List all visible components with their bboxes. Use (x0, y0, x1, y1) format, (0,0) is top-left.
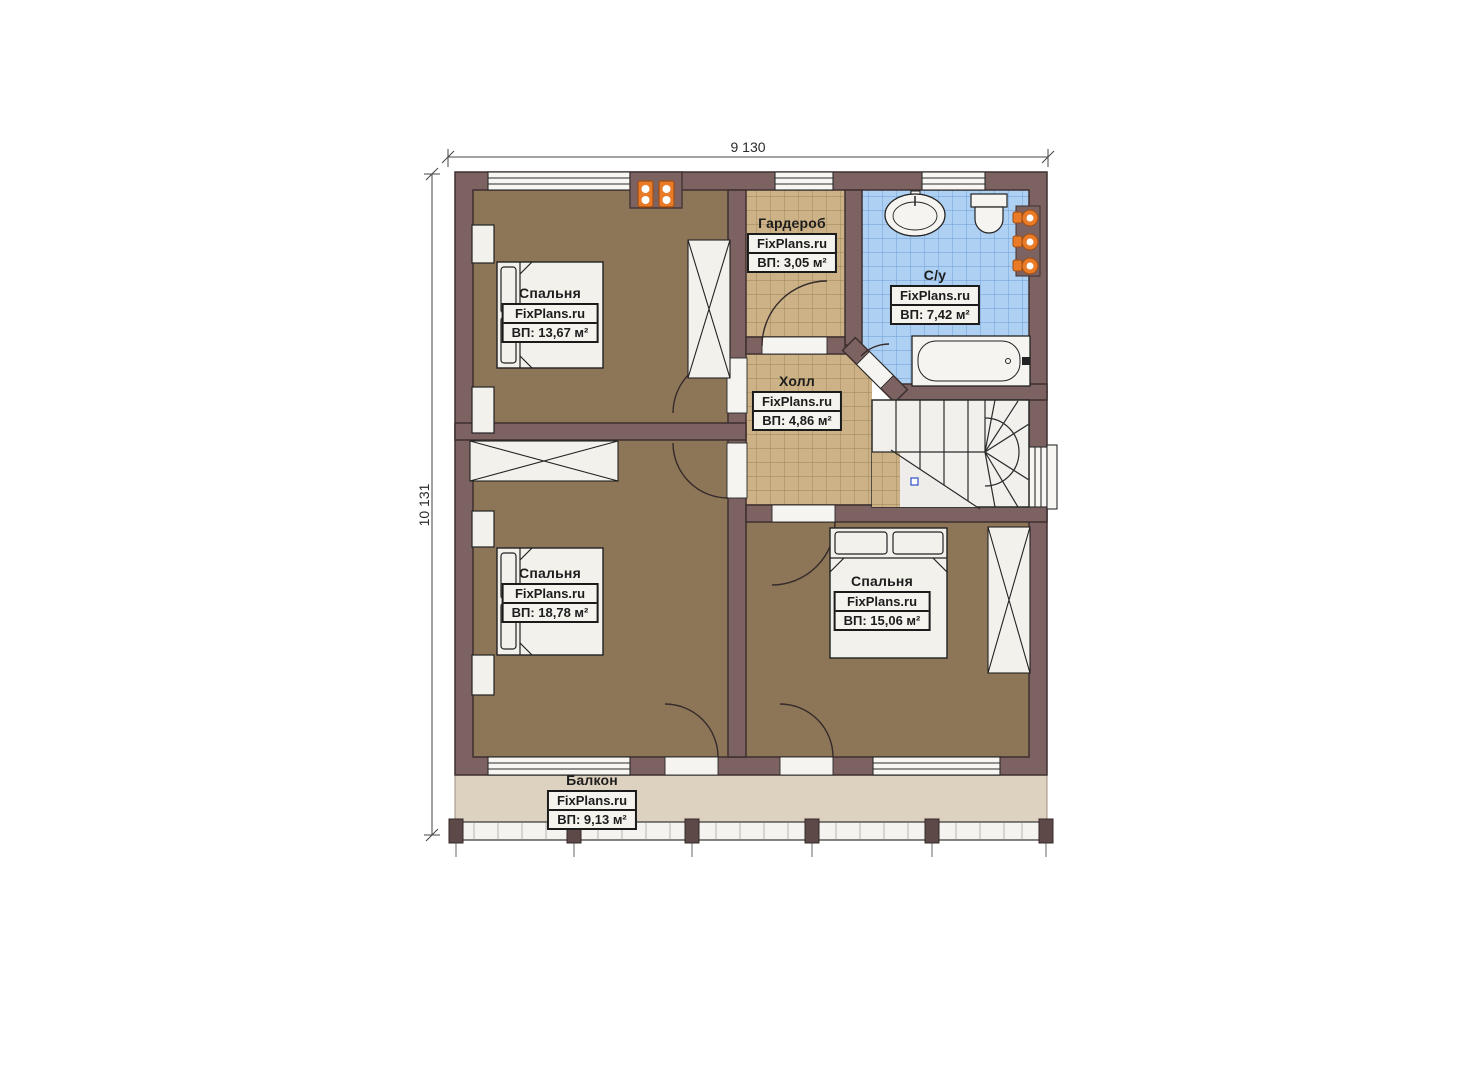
room-info-box: FixPlans.ru ВП: 3,05 м² (747, 233, 837, 273)
room-label-bedroom2: Спальня FixPlans.ru ВП: 18,78 м² (502, 565, 599, 623)
brand-watermark: FixPlans.ru (549, 792, 635, 809)
bedroom3-door-opening (772, 505, 835, 522)
floor-plan-drawing (0, 0, 1473, 1080)
bedroom2-door-opening (727, 443, 747, 498)
room-area: ВП: 13,67 м² (504, 322, 597, 341)
window-top-wardrobe (775, 172, 833, 190)
dimension-height-label: 10 131 (416, 484, 432, 527)
window-right-stairs (1029, 445, 1057, 509)
nightstand (472, 387, 494, 433)
brand-watermark: FixPlans.ru (892, 287, 978, 304)
brand-watermark: FixPlans.ru (836, 593, 929, 610)
room-info-box: FixPlans.ru ВП: 7,42 м² (890, 285, 980, 325)
room-info-box: FixPlans.ru ВП: 13,67 м² (502, 303, 599, 343)
room-area: ВП: 15,06 м² (836, 610, 929, 629)
stair-break-marker (911, 478, 918, 485)
room-name: С/у (890, 267, 980, 283)
room-name: Спальня (502, 285, 599, 301)
dimension-width-label: 9 130 (730, 139, 765, 155)
room-area: ВП: 18,78 м² (504, 602, 597, 621)
window-top-bedroom1 (488, 172, 630, 190)
bedroom-divider-wall (455, 423, 746, 440)
room-name: Гардероб (747, 215, 837, 231)
room-name: Спальня (834, 573, 931, 589)
bedroom3-wardrobe-icon (988, 527, 1030, 673)
bedroom1-wardrobe-icon (688, 240, 730, 378)
brand-watermark: FixPlans.ru (504, 585, 597, 602)
towel-radiator-icon (1013, 206, 1040, 276)
wardrobe-door-opening (762, 337, 827, 354)
room-label-bedroom3: Спальня FixPlans.ru ВП: 15,06 м² (834, 573, 931, 631)
room-label-wardrobe: Гардероб FixPlans.ru ВП: 3,05 м² (747, 215, 837, 273)
room-label-bedroom1: Спальня FixPlans.ru ВП: 13,67 м² (502, 285, 599, 343)
room-name: Холл (752, 373, 842, 389)
brand-watermark: FixPlans.ru (754, 393, 840, 410)
bathtub-icon (912, 336, 1030, 386)
window-top-bathroom (922, 172, 985, 190)
nightstand (472, 655, 494, 695)
nightstand (472, 511, 494, 547)
balcony-door-opening-left (665, 757, 718, 775)
room-name: Балкон (547, 772, 637, 788)
understairs-floor (872, 452, 900, 507)
room-area: ВП: 4,86 м² (754, 410, 840, 429)
brand-watermark: FixPlans.ru (749, 235, 835, 252)
bathtub-faucet (1022, 357, 1030, 365)
balcony-floor (455, 775, 1047, 822)
bedroom2-wardrobe-icon (470, 441, 618, 481)
nightstand (472, 225, 494, 263)
room-label-hall: Холл FixPlans.ru ВП: 4,86 м² (752, 373, 842, 431)
staircase (872, 400, 1029, 509)
room-label-balcony: Балкон FixPlans.ru ВП: 9,13 м² (547, 772, 637, 830)
room-area: ВП: 3,05 м² (749, 252, 835, 271)
room-label-bathroom: С/у FixPlans.ru ВП: 7,42 м² (890, 267, 980, 325)
brand-watermark: FixPlans.ru (504, 305, 597, 322)
radiator-icon (630, 172, 682, 208)
window-bottom-bedroom3 (873, 757, 1000, 775)
room-name: Спальня (502, 565, 599, 581)
room-info-box: FixPlans.ru ВП: 18,78 м² (502, 583, 599, 623)
floor-plan-canvas: Спальня FixPlans.ru ВП: 13,67 м² Гардеро… (0, 0, 1473, 1080)
room-info-box: FixPlans.ru ВП: 9,13 м² (547, 790, 637, 830)
wardrobe-bathroom-wall (845, 190, 862, 345)
room-area: ВП: 7,42 м² (892, 304, 978, 323)
room-area: ВП: 9,13 м² (549, 809, 635, 828)
room-info-box: FixPlans.ru ВП: 4,86 м² (752, 391, 842, 431)
balcony-railing (449, 819, 1053, 857)
room-info-box: FixPlans.ru ВП: 15,06 м² (834, 591, 931, 631)
balcony-door-opening-right (780, 757, 833, 775)
